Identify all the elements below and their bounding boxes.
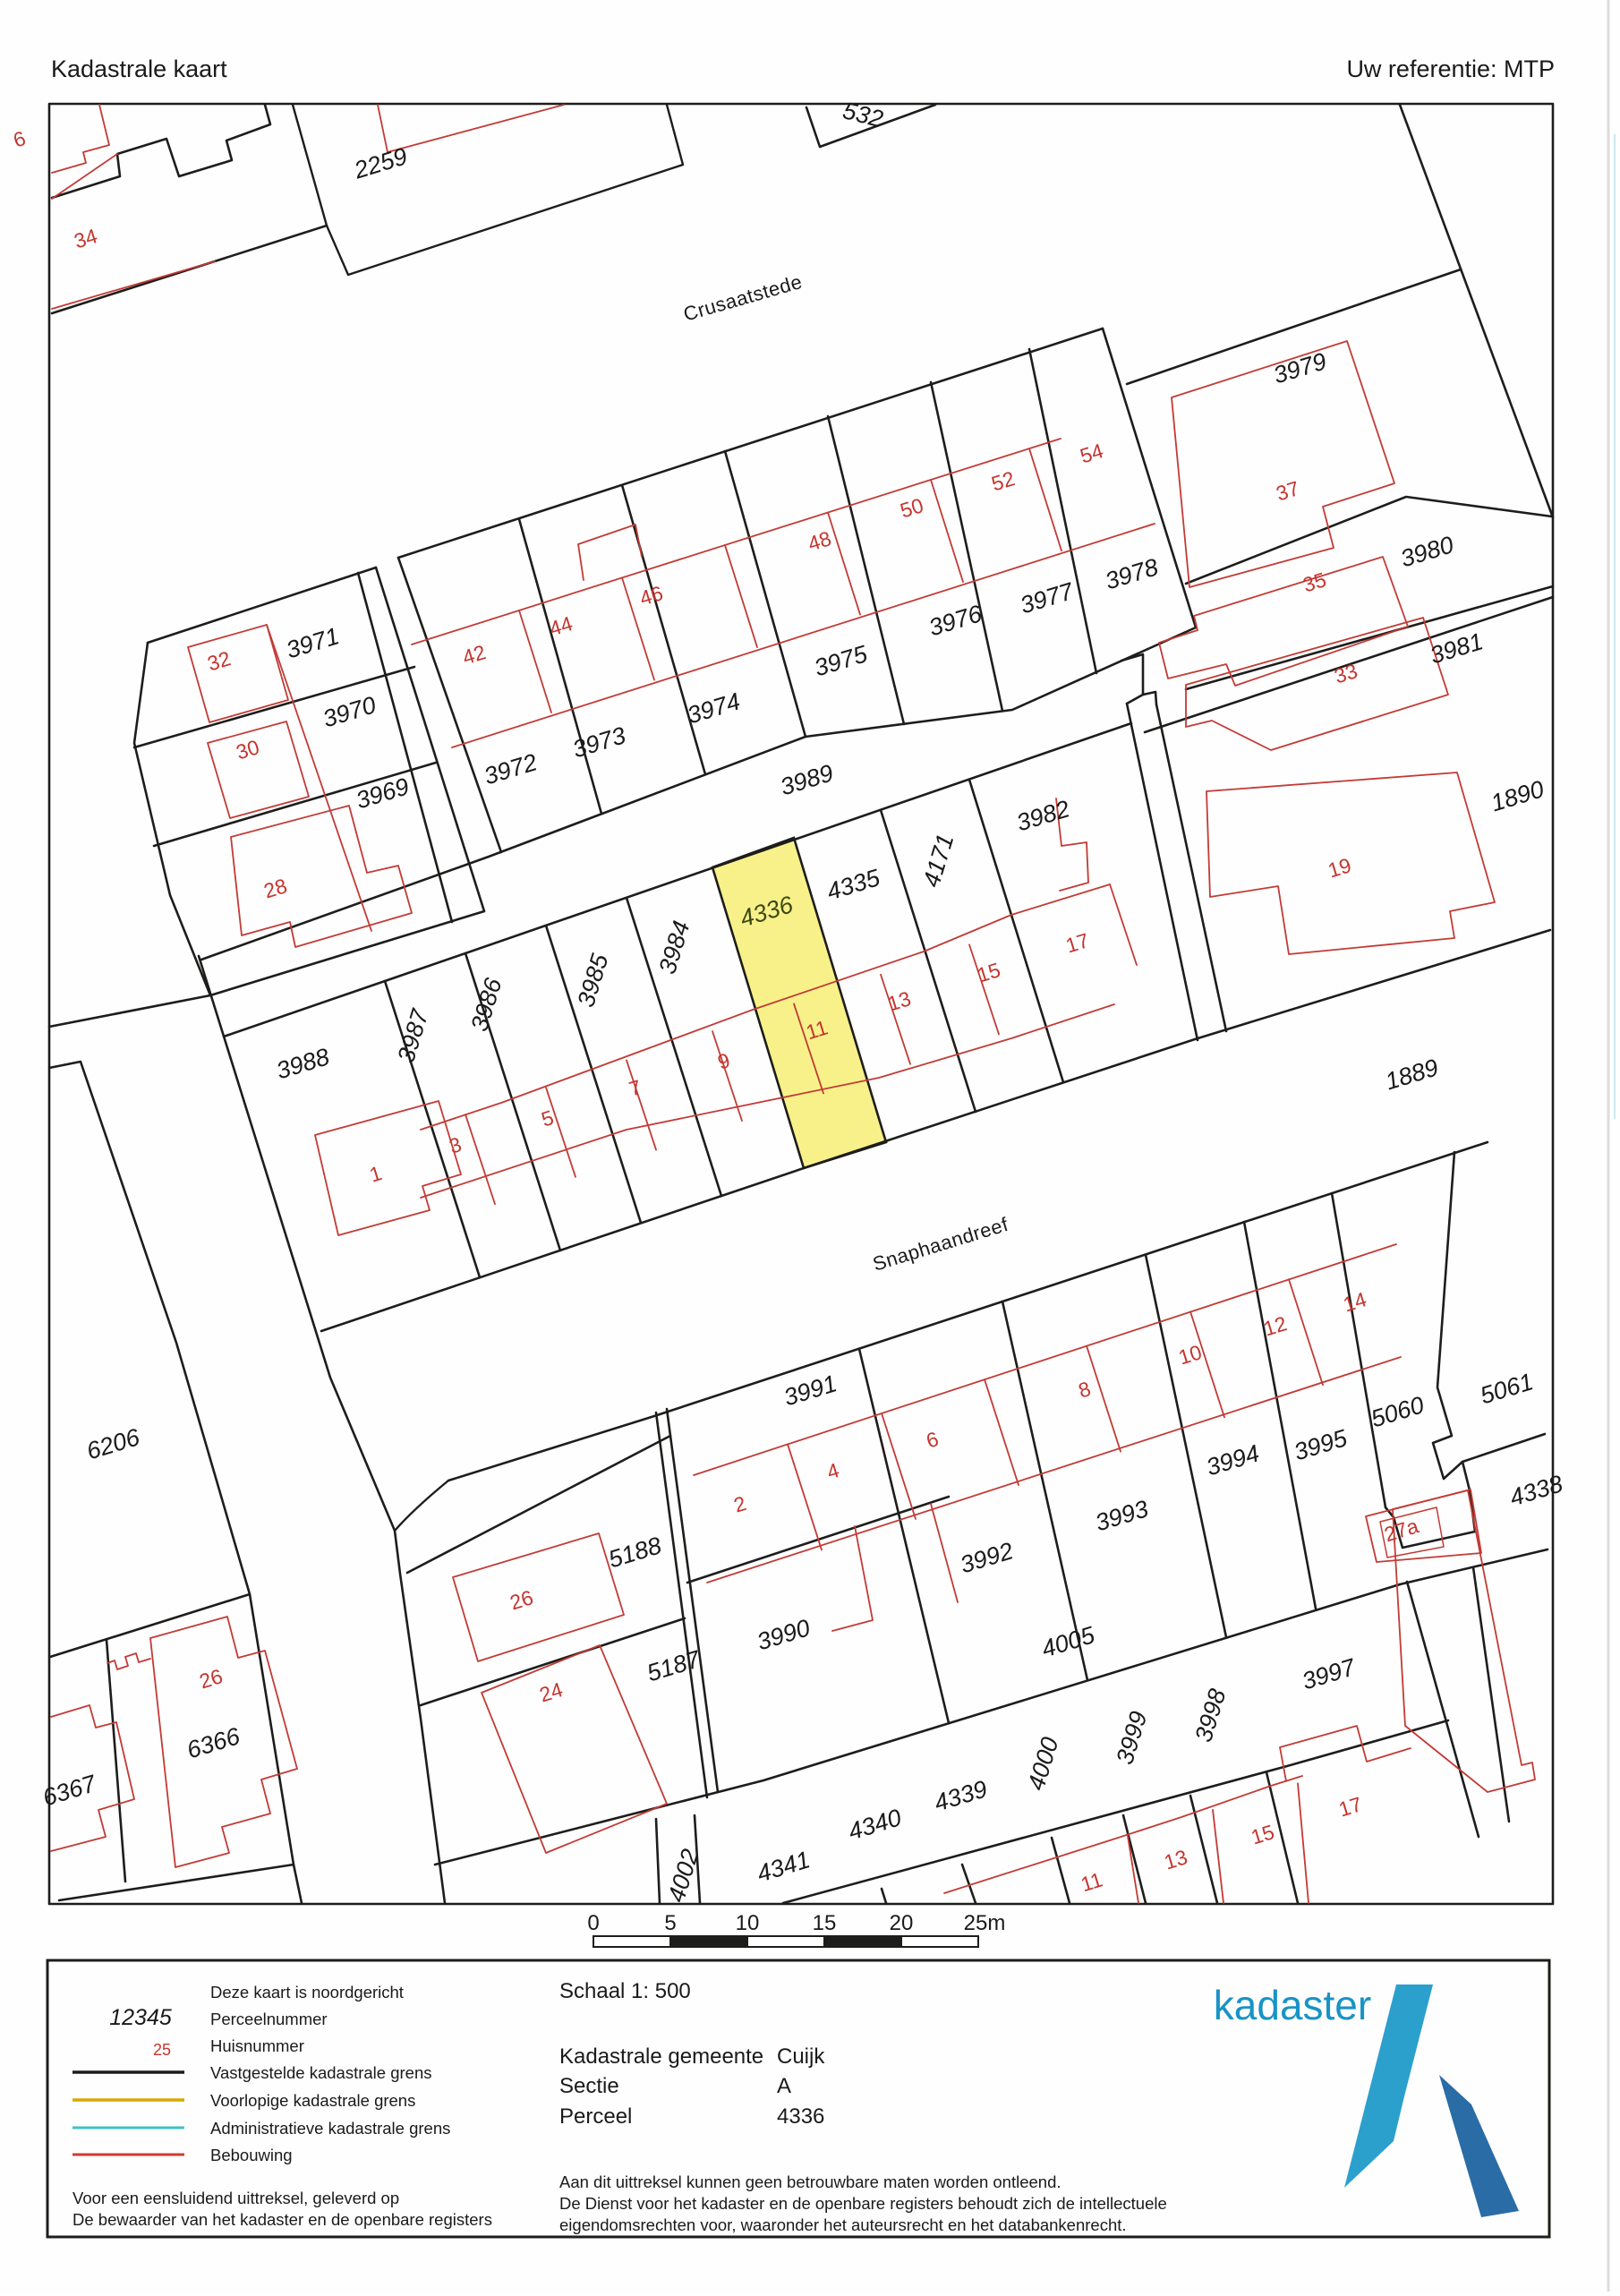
svg-text:5: 5 [664,1911,676,1935]
svg-text:20: 20 [890,1911,914,1935]
svg-text:Kadastrale gemeente: Kadastrale gemeente [559,2044,763,2069]
svg-text:Aan dit uittreksel kunnen geen: Aan dit uittreksel kunnen geen betrouwba… [559,2172,1062,2191]
svg-text:12345: 12345 [109,2005,172,2030]
svg-text:Uw referentie: MTP: Uw referentie: MTP [1346,55,1555,82]
svg-text:4336: 4336 [777,2104,824,2129]
svg-text:Voor een eensluidend uittrekse: Voor een eensluidend uittreksel, gelever… [72,2189,399,2207]
svg-text:15: 15 [813,1911,837,1935]
svg-text:0: 0 [587,1911,599,1935]
svg-text:De Dienst voor het kadaster en: De Dienst voor het kadaster en de openba… [559,2194,1167,2213]
svg-text:eigendomsrechten voor, waarond: eigendomsrechten voor, waaronder het aut… [559,2215,1127,2234]
svg-text:A: A [777,2074,791,2098]
svg-text:Cuijk: Cuijk [777,2044,825,2069]
svg-text:Administratieve kadastrale gre: Administratieve kadastrale grens [210,2119,450,2138]
svg-text:kadaster: kadaster [1214,1982,1371,2028]
svg-text:Voorlopige kadastrale grens: Voorlopige kadastrale grens [210,2091,415,2110]
svg-text:Sectie: Sectie [559,2074,619,2098]
svg-text:Vastgestelde kadastrale grens: Vastgestelde kadastrale grens [210,2063,432,2082]
svg-text:25: 25 [153,2041,171,2059]
svg-text:De bewaarder van het kadaster: De bewaarder van het kadaster en de open… [72,2210,492,2229]
svg-text:Bebouwing: Bebouwing [210,2146,293,2164]
svg-text:Perceelnummer: Perceelnummer [210,2010,328,2028]
svg-text:10: 10 [736,1911,760,1935]
svg-text:Huisnummer: Huisnummer [210,2036,304,2055]
svg-text:Kadastrale kaart: Kadastrale kaart [51,55,227,82]
svg-text:Deze kaart is noordgericht: Deze kaart is noordgericht [210,1983,404,2002]
svg-text:25m: 25m [964,1911,1006,1935]
svg-text:Perceel: Perceel [559,2104,632,2129]
svg-text:Schaal 1: 500: Schaal 1: 500 [559,1979,691,2003]
